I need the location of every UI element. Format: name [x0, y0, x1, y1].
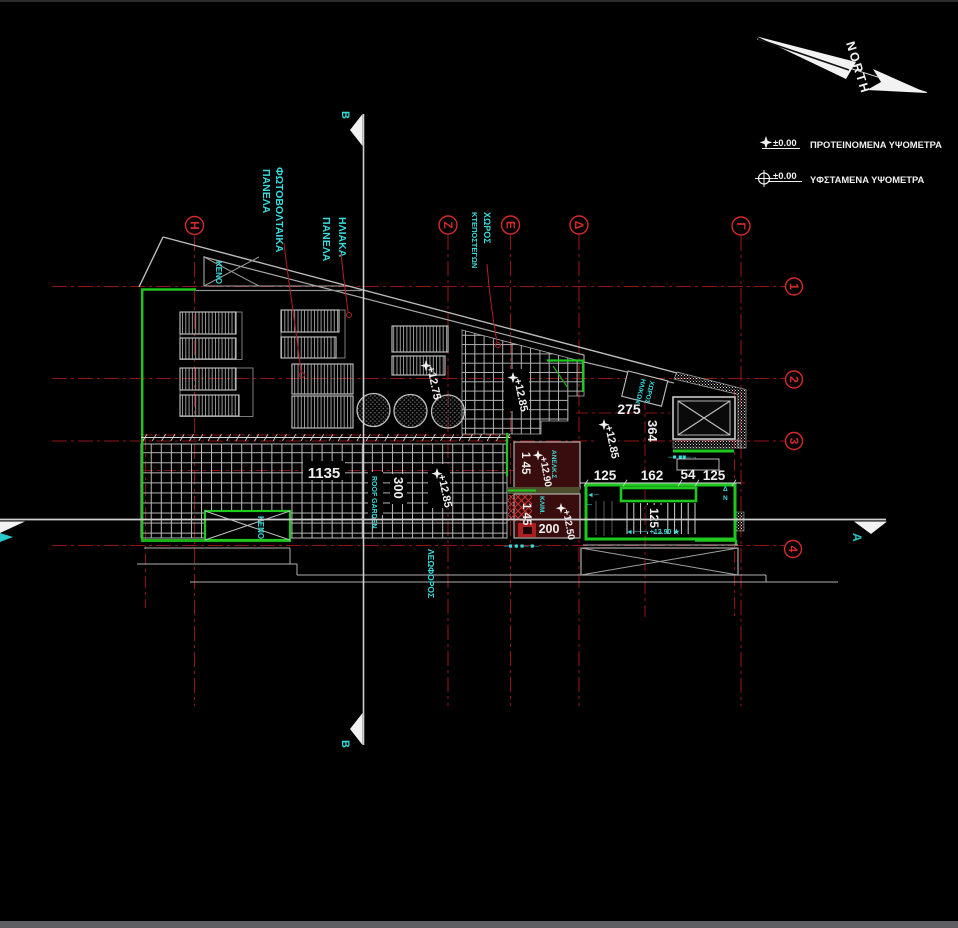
svg-text:B: B: [339, 740, 351, 748]
svg-text:ΠPOTEINOMENA YΨOMETPA: ΠPOTEINOMENA YΨOMETPA: [810, 139, 942, 150]
svg-text:ΠANEΛA: ΠANEΛA: [320, 217, 332, 262]
svg-text:2: 2: [787, 376, 801, 383]
svg-text:─■ ■■─→: ─■ ■■─→: [667, 454, 697, 461]
svg-text:1135: 1135: [308, 465, 341, 482]
svg-text:±0.00: ±0.00: [773, 171, 797, 182]
svg-text:Δ: Δ: [572, 221, 586, 230]
svg-text:H: H: [188, 221, 202, 230]
svg-text:125: 125: [594, 468, 617, 483]
svg-text:E: E: [504, 221, 518, 229]
svg-text:KΛIM.: KΛIM.: [538, 496, 545, 514]
svg-text:YΦΣTAMENA YΨOMETPA: YΦΣTAMENA YΨOMETPA: [810, 174, 925, 185]
svg-text:HΛIAKA: HΛIAKA: [336, 217, 348, 258]
svg-text:KTEΠOΣTEΓΩN: KTEΠOΣTEΓΩN: [470, 212, 479, 268]
svg-text:Ν: Ν: [723, 495, 728, 502]
svg-text:3: 3: [787, 438, 801, 445]
svg-text:±0.00: ±0.00: [773, 138, 797, 149]
svg-text:ΛEΩΦΟPΟΣ: ΛEΩΦΟPΟΣ: [426, 549, 436, 598]
svg-text:─: ─: [586, 502, 592, 509]
svg-text:162: 162: [641, 468, 664, 483]
svg-text:KENO: KENO: [214, 261, 223, 284]
svg-text:XΩPOΣ: XΩPOΣ: [482, 212, 492, 244]
svg-text:200: 200: [539, 522, 560, 536]
svg-text:4: 4: [786, 546, 800, 553]
svg-text:Δ: Δ: [723, 486, 728, 493]
svg-text:─■ ■ ■─ ■─: ─■ ■ ■─ ■─: [503, 543, 539, 550]
svg-text:◄─── +12.90 ★: ◄─── +12.90 ★: [626, 528, 680, 536]
svg-text:275: 275: [617, 401, 641, 417]
svg-text:1: 1: [787, 283, 801, 290]
svg-text:1 45: 1 45: [519, 452, 531, 475]
svg-text:125: 125: [703, 468, 726, 483]
svg-text:Γ: Γ: [734, 222, 748, 230]
svg-text:Z: Z: [441, 221, 455, 228]
svg-text:364: 364: [645, 420, 660, 442]
svg-text:ROOF GARDEN: ROOF GARDEN: [370, 476, 377, 529]
svg-text:ΠANEΛA: ΠANEΛA: [260, 169, 272, 214]
svg-text:54: 54: [680, 467, 696, 482]
svg-text:125: 125: [647, 508, 661, 528]
svg-text:ANEΛK.Σ: ANEΛK.Σ: [550, 450, 557, 479]
svg-text:◄─: ◄─: [587, 492, 599, 499]
svg-text:A: A: [850, 533, 864, 542]
svg-text:1 45: 1 45: [520, 503, 532, 526]
svg-text:ΦΩTOBOΛTAIKA: ΦΩTOBOΛTAIKA: [273, 167, 285, 253]
svg-text:B: B: [339, 111, 351, 119]
svg-text:300: 300: [391, 477, 406, 499]
